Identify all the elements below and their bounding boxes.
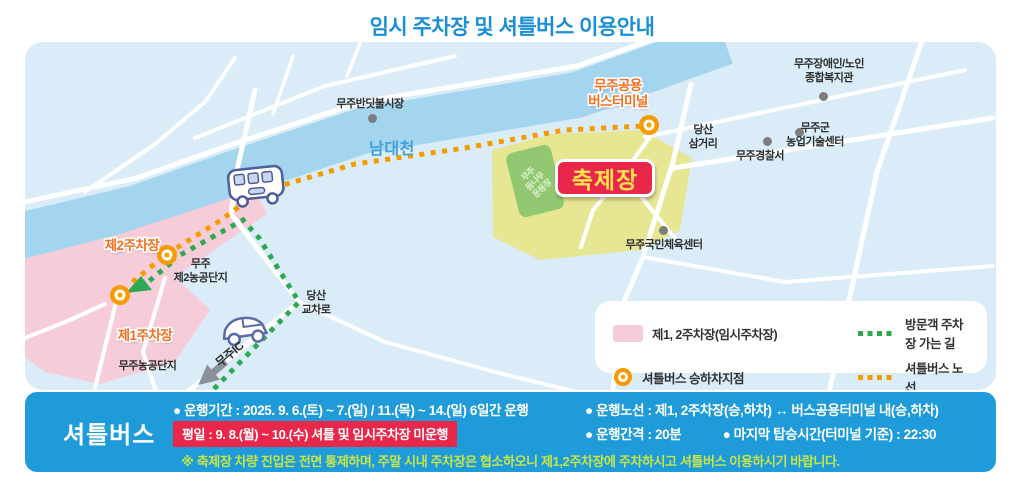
- place-label-market: 무주반딧불시장: [317, 98, 423, 112]
- sports-field-label: 무주 등나무 운동장: [516, 162, 553, 199]
- place-label-terminal: 무주공용버스터미널: [563, 78, 673, 110]
- orange-dotted-line-icon: [858, 375, 896, 380]
- shuttle-stop-marker-parking1: [109, 284, 131, 306]
- green-dotted-line-icon: [858, 331, 896, 336]
- shuttle-stop-icon: [613, 367, 633, 387]
- operation-period: ● 운행기간 : 2025. 9. 6.(토) ~ 7.(일) / 11.(목)…: [173, 399, 528, 419]
- poster: 임시 주차장 및 셔틀버스 이용안내: [0, 0, 1024, 499]
- place-label-complex1: 무주농공단지: [95, 360, 200, 374]
- shuttle-heading: 셔틀버스: [63, 415, 155, 450]
- place-label-agri: 무주군농업기술센터: [770, 122, 860, 150]
- bus-icon: [221, 156, 290, 214]
- legend-item-bus-route: 셔틀버스 노선: [858, 358, 969, 390]
- place-dot-market: [368, 114, 377, 123]
- place-label-dangsan-samgeori: 당산삼거리: [673, 124, 733, 152]
- legend-item-parking: 제1, 2주차장(임시주차장): [613, 324, 848, 343]
- river-label: 남대천: [347, 135, 437, 159]
- shuttle-stop-marker-terminal: [638, 114, 660, 136]
- place-dot-sports: [659, 226, 668, 235]
- place-label-parking2: 제2주차장: [91, 238, 173, 254]
- operation-interval: ● 운행간격 : 20분: [585, 427, 681, 442]
- map: 남대천 무주 등나무 운동장 축제장: [25, 42, 996, 390]
- shuttle-info-bar: 셔틀버스 ● 운행기간 : 2025. 9. 6.(토) ~ 7.(일) / 1…: [25, 392, 996, 472]
- last-boarding-time: ● 마지막 탑승시간(터미널 기준) : 22:30: [723, 427, 937, 442]
- page-title: 임시 주차장 및 셔틀버스 이용안내: [0, 11, 1024, 41]
- place-label-police: 무주경찰서: [720, 150, 800, 164]
- place-label-complex2: 무주제2농공단지: [153, 258, 248, 286]
- festival-badge: 축제장: [555, 159, 655, 197]
- legend: 제1, 2주차장(임시주차장) 방문객 주차장 가는 길 셔틀버스 승하차지점 …: [595, 301, 987, 373]
- legend-item-stop: 셔틀버스 승하차지점: [613, 367, 848, 387]
- place-label-parking1: 제1주차장: [101, 328, 189, 344]
- operation-details: ● 운행간격 : 20분 ● 마지막 탑승시간(터미널 기준) : 22:30: [585, 423, 936, 443]
- parking-swatch-icon: [613, 325, 643, 342]
- place-label-dangsan-crossing: 당산교차로: [287, 290, 345, 318]
- place-dot-welfare: [819, 92, 828, 101]
- place-label-welfare: 무주장애인/노인종합복지관: [764, 58, 894, 86]
- legend-item-visitor-route: 방문객 주차장 가는 길: [858, 314, 969, 352]
- place-label-sports: 무주국민체육센터: [601, 239, 727, 253]
- weekday-notice: 평일 : 9. 8.(월) ~ 10.(수) 셔틀 및 임시주차장 미운행: [173, 421, 457, 447]
- operation-route: ● 운행노선 : 제1, 2주차장(승,하차) ↔ 버스공용터미널 내(승,하차…: [585, 399, 939, 419]
- footer-note: ※ 축제장 차량 진입은 전면 통제하며, 주말 시내 주차장은 협소하오니 제…: [25, 451, 996, 470]
